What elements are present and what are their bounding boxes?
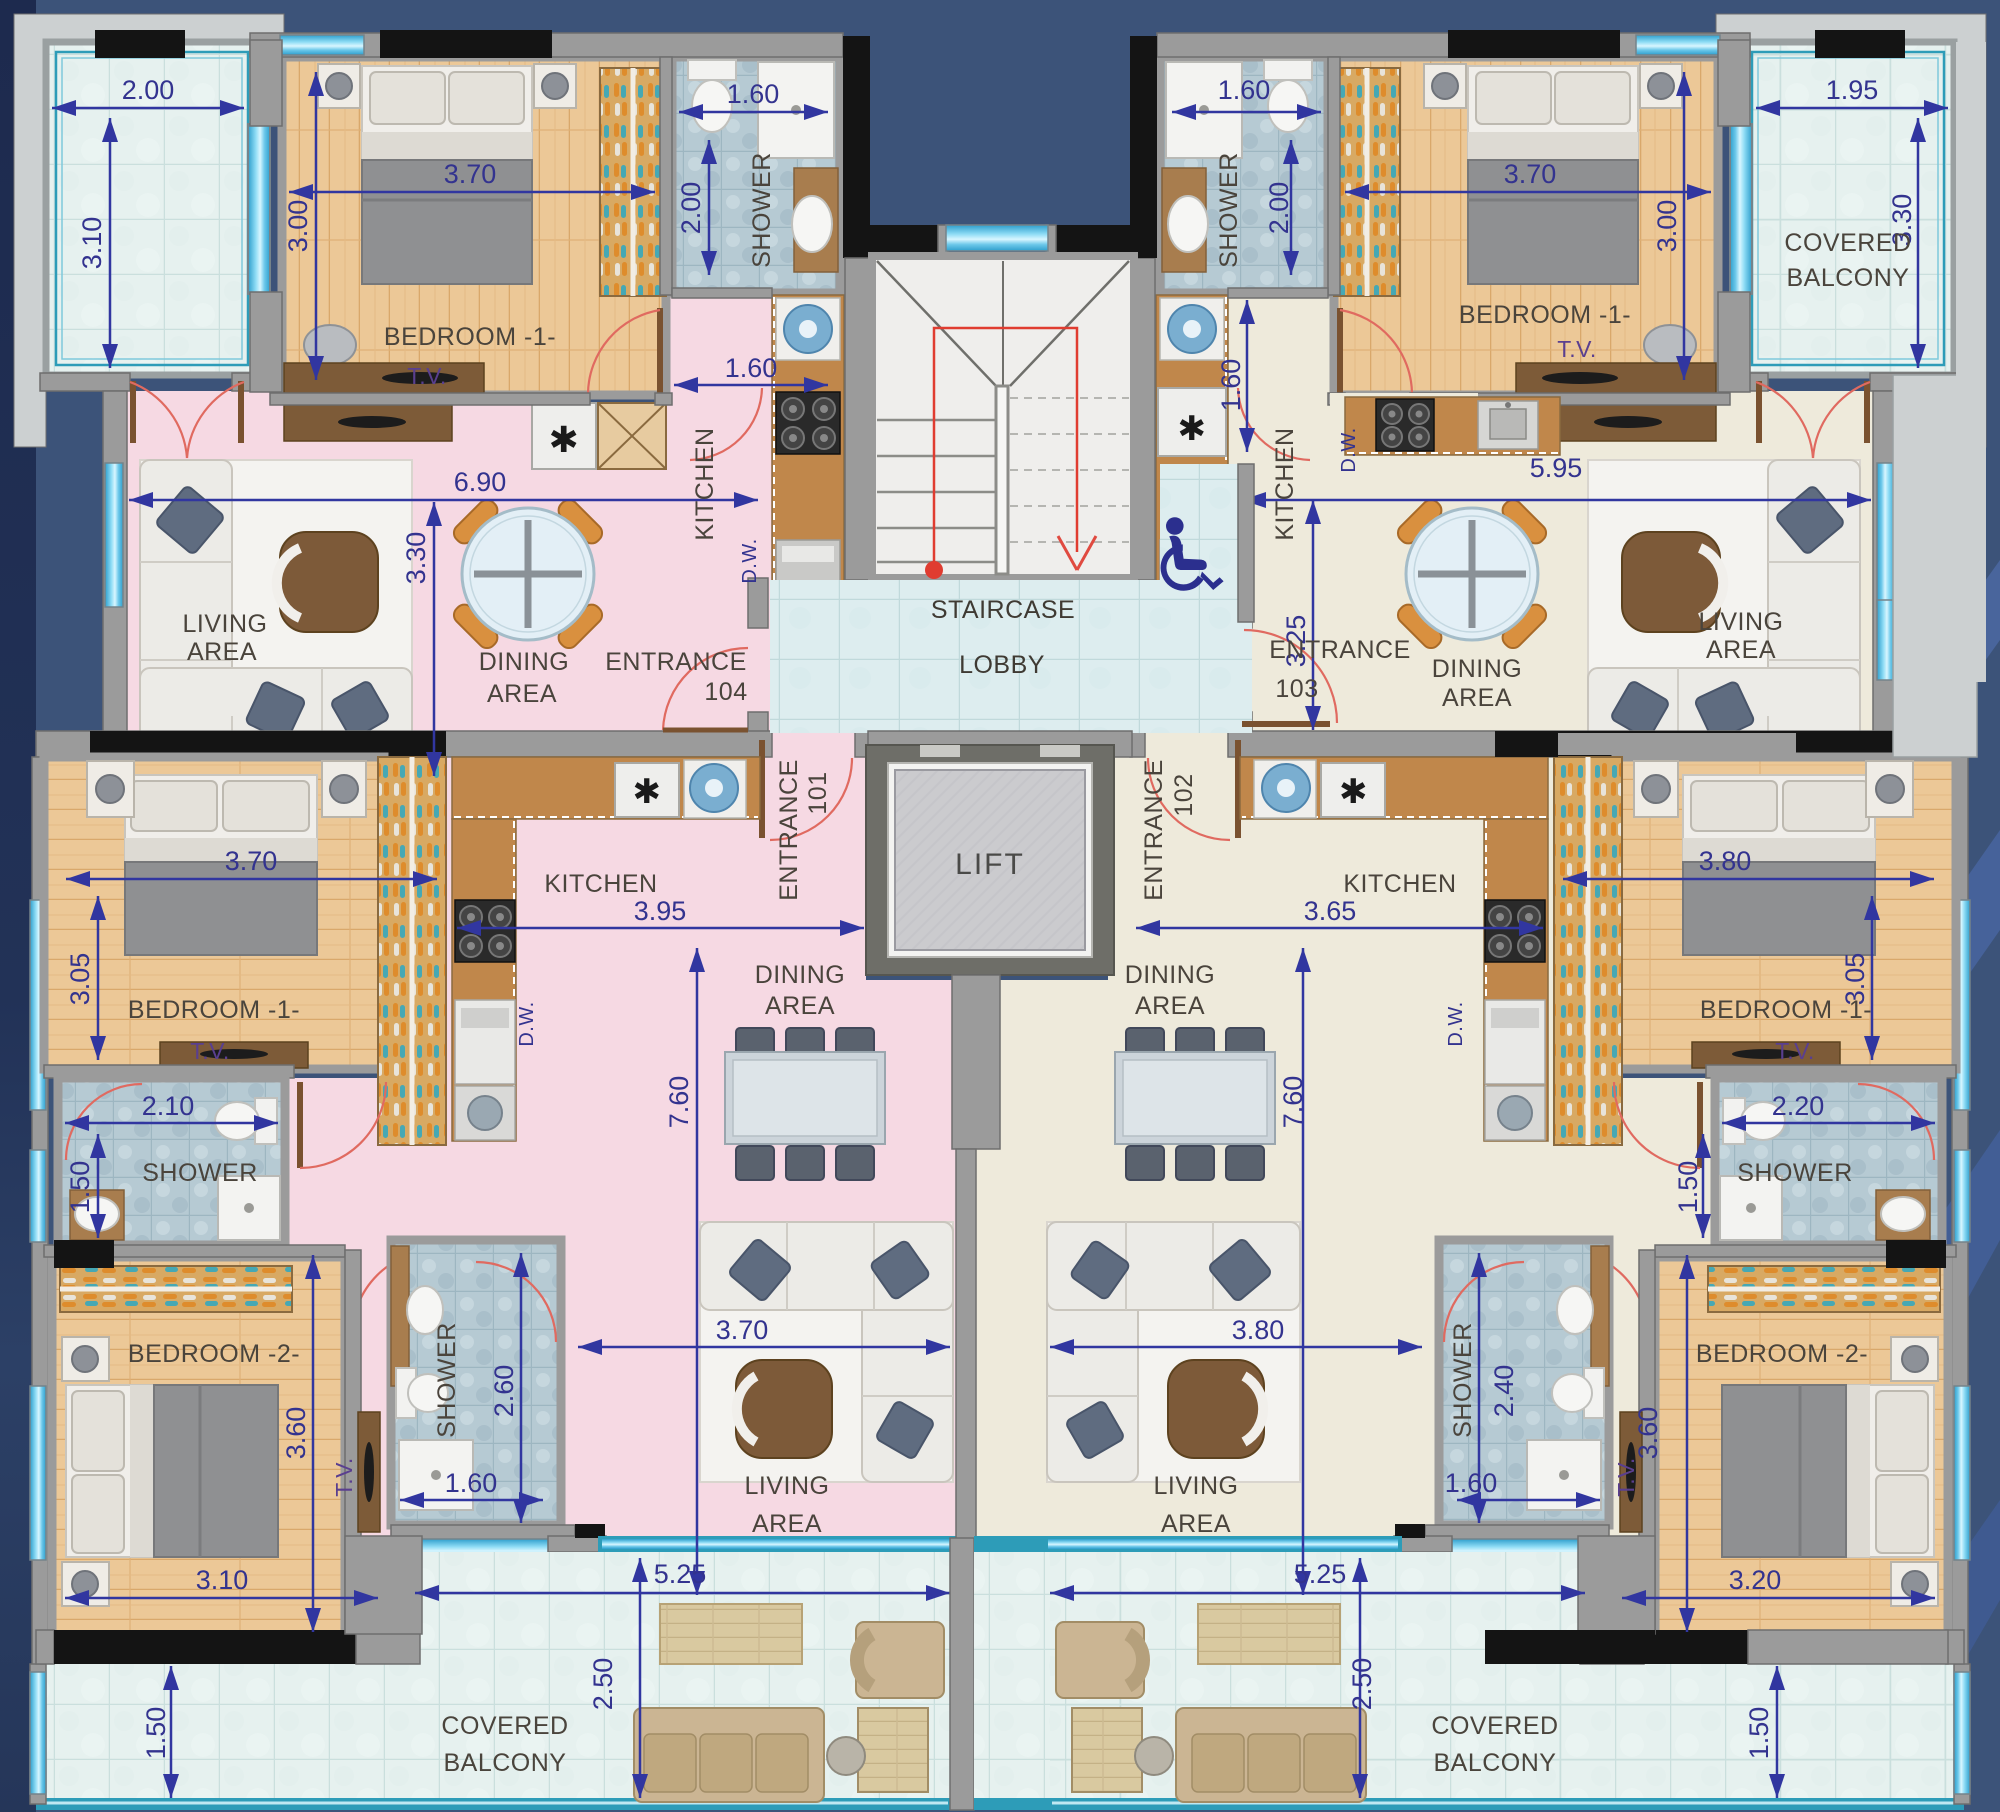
svg-text:BALCONY: BALCONY [444, 1749, 567, 1777]
svg-text:SHOWER: SHOWER [1737, 1159, 1853, 1187]
svg-text:COVERED: COVERED [1431, 1712, 1558, 1740]
svg-text:3.05: 3.05 [65, 953, 95, 1006]
svg-text:3.60: 3.60 [281, 1407, 311, 1460]
svg-text:1.50: 1.50 [141, 1707, 171, 1760]
svg-text:1.50: 1.50 [65, 1161, 95, 1214]
svg-text:5.95: 5.95 [1530, 453, 1583, 483]
svg-text:104: 104 [704, 678, 747, 706]
svg-text:SHOWER: SHOWER [748, 152, 776, 268]
svg-text:LIVING: LIVING [745, 1472, 830, 1500]
svg-text:T.V.: T.V. [1557, 336, 1597, 362]
svg-text:✱: ✱ [633, 773, 662, 811]
svg-text:3.60: 3.60 [1633, 1407, 1663, 1460]
svg-text:3.10: 3.10 [77, 217, 107, 270]
svg-text:ENTRANCE: ENTRANCE [1269, 636, 1411, 664]
svg-text:AREA: AREA [752, 1510, 822, 1538]
svg-text:3.95: 3.95 [634, 896, 687, 926]
svg-text:BEDROOM -1-: BEDROOM -1- [384, 323, 556, 351]
svg-text:3.70: 3.70 [716, 1315, 769, 1345]
svg-text:KITCHEN: KITCHEN [1343, 870, 1456, 898]
svg-text:SHOWER: SHOWER [433, 1322, 461, 1438]
svg-text:D.W.: D.W. [1445, 1001, 1467, 1046]
svg-text:3.70: 3.70 [225, 846, 278, 876]
svg-text:T.V.: T.V. [331, 1457, 357, 1497]
svg-text:1.50: 1.50 [1673, 1161, 1703, 1214]
svg-text:T.V.: T.V. [190, 1038, 230, 1064]
svg-text:2.10: 2.10 [142, 1091, 195, 1121]
svg-text:T.V.: T.V. [1613, 1457, 1639, 1497]
svg-text:LIFT: LIFT [955, 848, 1025, 881]
svg-text:2.00: 2.00 [1264, 182, 1294, 235]
svg-text:✱: ✱ [1178, 410, 1207, 448]
svg-text:5.25: 5.25 [1294, 1559, 1347, 1589]
svg-text:2.00: 2.00 [122, 75, 175, 105]
svg-text:LIVING: LIVING [1154, 1472, 1239, 1500]
svg-text:3.05: 3.05 [1840, 953, 1870, 1006]
svg-text:AREA: AREA [187, 638, 257, 666]
svg-text:AREA: AREA [487, 680, 557, 708]
svg-text:STAIRCASE: STAIRCASE [931, 596, 1075, 624]
svg-text:1.95: 1.95 [1826, 75, 1879, 105]
svg-text:7.60: 7.60 [1278, 1076, 1308, 1129]
svg-text:BEDROOM -1-: BEDROOM -1- [1459, 301, 1631, 329]
svg-text:1.60: 1.60 [1445, 1468, 1498, 1498]
svg-text:3.80: 3.80 [1699, 846, 1752, 876]
svg-text:5.25: 5.25 [654, 1559, 707, 1589]
svg-text:3.80: 3.80 [1232, 1315, 1285, 1345]
svg-text:1.60: 1.60 [1216, 359, 1246, 412]
svg-text:BEDROOM -2-: BEDROOM -2- [1696, 1340, 1868, 1368]
svg-text:1.60: 1.60 [725, 353, 778, 383]
svg-text:D.W.: D.W. [1338, 427, 1360, 472]
svg-text:103: 103 [1275, 675, 1318, 703]
svg-text:102: 102 [1170, 773, 1198, 816]
svg-text:SHOWER: SHOWER [142, 1159, 258, 1187]
svg-text:1.50: 1.50 [1744, 1707, 1774, 1760]
svg-text:T.V.: T.V. [407, 363, 447, 389]
svg-text:3.70: 3.70 [444, 159, 497, 189]
svg-text:2.20: 2.20 [1772, 1091, 1825, 1121]
svg-text:1.60: 1.60 [727, 79, 780, 109]
svg-text:2.00: 2.00 [676, 182, 706, 235]
svg-text:2.40: 2.40 [1489, 1365, 1519, 1418]
svg-text:KITCHEN: KITCHEN [691, 427, 719, 540]
svg-text:3.00: 3.00 [283, 200, 313, 253]
svg-text:BALCONY: BALCONY [1787, 264, 1910, 292]
svg-text:KITCHEN: KITCHEN [544, 870, 657, 898]
svg-text:AREA: AREA [1706, 636, 1776, 664]
svg-text:101: 101 [804, 771, 832, 814]
svg-text:SHOWER: SHOWER [1449, 1322, 1477, 1438]
svg-text:DINING: DINING [1432, 655, 1523, 683]
svg-text:DINING: DINING [755, 961, 846, 989]
svg-text:T.V.: T.V. [1775, 1038, 1815, 1064]
svg-text:AREA: AREA [1135, 992, 1205, 1020]
svg-text:BEDROOM -1-: BEDROOM -1- [128, 996, 300, 1024]
svg-text:DINING: DINING [1125, 961, 1216, 989]
svg-text:3.20: 3.20 [1729, 1565, 1782, 1595]
svg-text:COVERED: COVERED [1784, 229, 1911, 257]
svg-text:3.65: 3.65 [1304, 896, 1357, 926]
svg-text:7.60: 7.60 [664, 1076, 694, 1129]
svg-text:ENTRANCE: ENTRANCE [1140, 759, 1168, 901]
svg-text:3.10: 3.10 [196, 1565, 249, 1595]
svg-text:✱: ✱ [549, 419, 580, 460]
svg-text:AREA: AREA [765, 992, 835, 1020]
svg-text:BALCONY: BALCONY [1434, 1749, 1557, 1777]
svg-text:D.W.: D.W. [739, 538, 761, 583]
svg-text:D.W.: D.W. [516, 1001, 538, 1046]
svg-text:LIVING: LIVING [183, 610, 268, 638]
svg-text:2.60: 2.60 [489, 1365, 519, 1418]
svg-text:3.70: 3.70 [1504, 159, 1557, 189]
svg-text:6.90: 6.90 [454, 467, 507, 497]
svg-text:LOBBY: LOBBY [959, 651, 1045, 679]
svg-text:3.00: 3.00 [1652, 200, 1682, 253]
svg-text:1.60: 1.60 [445, 1468, 498, 1498]
svg-text:2.50: 2.50 [588, 1658, 618, 1711]
svg-text:COVERED: COVERED [441, 1712, 568, 1740]
svg-text:AREA: AREA [1161, 1510, 1231, 1538]
svg-text:BEDROOM -2-: BEDROOM -2- [128, 1340, 300, 1368]
svg-text:2.50: 2.50 [1347, 1658, 1377, 1711]
svg-text:3.30: 3.30 [401, 532, 431, 585]
svg-text:DINING: DINING [479, 648, 570, 676]
svg-text:SHOWER: SHOWER [1215, 152, 1243, 268]
svg-text:ENTRANCE: ENTRANCE [775, 759, 803, 901]
svg-text:KITCHEN: KITCHEN [1271, 427, 1299, 540]
svg-text:ENTRANCE: ENTRANCE [605, 648, 747, 676]
svg-text:LIVING: LIVING [1699, 608, 1784, 636]
svg-text:AREA: AREA [1442, 684, 1512, 712]
svg-text:1.60: 1.60 [1218, 75, 1271, 105]
